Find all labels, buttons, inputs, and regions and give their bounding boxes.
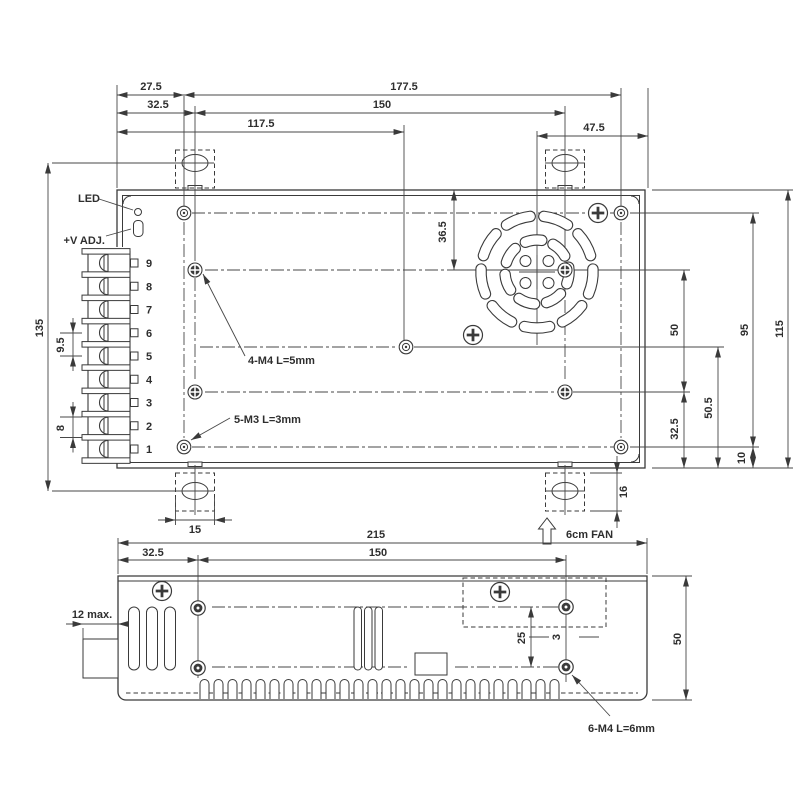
terminal-pin xyxy=(131,399,139,407)
dim-150: 150 xyxy=(373,99,391,111)
dim-8: 8 xyxy=(55,425,67,431)
terminal-fin xyxy=(82,388,130,394)
phillips-screw-icon xyxy=(589,204,608,223)
bottom-vent xyxy=(270,680,279,700)
fan-center-hole xyxy=(520,256,531,267)
dim-side-50: 50 xyxy=(672,633,684,645)
m4-side-hole xyxy=(559,660,573,674)
bottom-vent xyxy=(284,680,293,700)
terminal-number: 2 xyxy=(146,421,152,433)
terminal-fin xyxy=(82,435,130,441)
fan-center-hole xyxy=(543,256,554,267)
dim-side-150: 150 xyxy=(369,547,387,559)
m3-note: 5-M3 L=3mm xyxy=(234,414,301,426)
dim-32-5: 32.5 xyxy=(147,99,168,111)
terminal-number: 1 xyxy=(146,444,152,456)
bottom-vent xyxy=(424,680,433,700)
fan-center-hole xyxy=(520,278,531,289)
bottom-vent xyxy=(452,680,461,700)
phillips-screw-icon xyxy=(153,582,172,601)
bottom-vent xyxy=(508,680,517,700)
terminal-number: 3 xyxy=(146,398,152,410)
terminal-number: 9 xyxy=(146,258,152,270)
m3-hole xyxy=(614,206,628,220)
case-inner-wall xyxy=(123,196,640,463)
airflow-arrow-icon xyxy=(539,518,556,544)
m4-note: 4-M4 L=5mm xyxy=(248,355,315,367)
vent-slot xyxy=(375,607,383,670)
dim-25: 25 xyxy=(516,632,528,644)
terminal-pin xyxy=(131,445,139,453)
terminal-pin xyxy=(131,422,139,430)
dim-right-50-5: 50.5 xyxy=(703,397,715,418)
terminal-number: 8 xyxy=(146,281,152,293)
bottom-vent xyxy=(340,680,349,700)
top-m4-holes xyxy=(188,263,572,399)
terminal-pin xyxy=(131,306,139,314)
terminal-number: 5 xyxy=(146,351,152,363)
side-view: 215 32.5 150 12 max. 25 3 50 6-M4 L=6mm xyxy=(66,529,692,735)
phillips-screws-side xyxy=(153,582,510,602)
terminal-fin xyxy=(82,295,130,301)
terminal-pin xyxy=(131,329,139,337)
terminal-number: 6 xyxy=(146,328,152,340)
bottom-vent xyxy=(438,680,447,700)
terminal-pin xyxy=(131,259,139,267)
m4-hole xyxy=(558,385,572,399)
vent-slot xyxy=(365,607,373,670)
dim-right-95: 95 xyxy=(739,324,751,336)
m4-hole xyxy=(188,385,202,399)
bottom-vent xyxy=(536,680,545,700)
case-outline xyxy=(117,190,645,468)
bottom-vent xyxy=(494,680,503,700)
bottom-vent xyxy=(312,680,321,700)
side-mid-slots xyxy=(354,607,383,670)
dim-3: 3 xyxy=(551,634,563,640)
dim-right-115: 115 xyxy=(774,320,786,338)
fan-note: 6cm FAN xyxy=(566,529,613,541)
vent-slot xyxy=(165,607,176,670)
bottom-vent xyxy=(298,680,307,700)
dim-right-10: 10 xyxy=(736,452,748,464)
psu-mechanical-drawing: 987654321 27.5 177.5 32.5 150 117.5 47.5… xyxy=(0,0,800,800)
dim-36-5: 36.5 xyxy=(437,221,449,242)
phillips-screw-icon xyxy=(464,326,483,345)
m3-hole xyxy=(177,206,191,220)
bottom-vent xyxy=(550,680,559,700)
dim-215: 215 xyxy=(367,529,385,541)
internal-fan-outline xyxy=(463,578,606,627)
dim-side-32-5: 32.5 xyxy=(142,547,163,559)
bottom-vent xyxy=(242,680,251,700)
terminal-pin xyxy=(131,375,139,383)
led-indicator xyxy=(135,209,142,216)
bottom-vents xyxy=(200,680,559,700)
terminal-pin xyxy=(131,282,139,290)
bottom-vent xyxy=(256,680,265,700)
side-small-box xyxy=(415,653,447,675)
dim-9-5: 9.5 xyxy=(55,337,67,352)
dim-16: 16 xyxy=(618,486,630,498)
vent-slot xyxy=(354,607,362,670)
dim-right-32-5: 32.5 xyxy=(669,418,681,439)
m4-hole xyxy=(188,263,202,277)
dim-177-5: 177.5 xyxy=(390,81,418,93)
terminal-fin xyxy=(82,458,130,464)
dim-right-50: 50 xyxy=(669,324,681,336)
dimension-lines xyxy=(48,95,788,528)
terminal-protrusion xyxy=(83,639,118,678)
top-view: 987654321 27.5 177.5 32.5 150 117.5 47.5… xyxy=(34,81,793,544)
corner-reliefs xyxy=(123,196,639,462)
dim-135: 135 xyxy=(34,319,46,337)
dim-15: 15 xyxy=(189,524,201,536)
vent-slot xyxy=(147,607,158,670)
bottom-vent xyxy=(522,680,531,700)
extension-lines xyxy=(52,85,793,525)
bottom-vent xyxy=(368,680,377,700)
terminal-number: 4 xyxy=(146,374,153,386)
bottom-vent xyxy=(466,680,475,700)
m3-hole xyxy=(614,440,628,454)
voltage-adjust-pot xyxy=(134,221,144,237)
bottom-vent xyxy=(396,680,405,700)
terminal-number: 7 xyxy=(146,305,152,317)
m4-side-hole xyxy=(191,601,205,615)
m4-side-hole xyxy=(191,661,205,675)
terminal-fin xyxy=(82,365,130,371)
mounting-brackets xyxy=(176,150,585,515)
dim-27-5: 27.5 xyxy=(140,81,161,93)
terminal-fin xyxy=(82,342,130,348)
fan-center-hole xyxy=(543,278,554,289)
terminal-fin xyxy=(82,411,130,417)
bottom-vent xyxy=(410,680,419,700)
m4-side-hole xyxy=(559,600,573,614)
vent-slot xyxy=(129,607,140,670)
terminal-block: 987654321 xyxy=(82,247,153,463)
m3-hole xyxy=(399,340,413,354)
terminal-pin xyxy=(131,352,139,360)
dim-12-max: 12 max. xyxy=(72,609,112,621)
m4-hole xyxy=(558,263,572,277)
bottom-vent xyxy=(382,680,391,700)
terminal-fin xyxy=(82,272,130,278)
dim-117-5: 117.5 xyxy=(248,118,275,130)
led-label: LED xyxy=(78,193,100,205)
terminal-fin xyxy=(82,249,130,255)
bottom-vent xyxy=(228,680,237,700)
mechanical-drawing-page: 987654321 27.5 177.5 32.5 150 117.5 47.5… xyxy=(0,0,800,800)
bottom-vent xyxy=(354,680,363,700)
m3-hole xyxy=(177,440,191,454)
vadj-label: +V ADJ. xyxy=(64,235,105,247)
bottom-vent xyxy=(200,680,209,700)
bottom-vent xyxy=(214,680,223,700)
bottom-vent xyxy=(326,680,335,700)
side-left-vents xyxy=(129,607,176,670)
terminal-fin xyxy=(82,318,130,324)
phillips-screw-icon xyxy=(491,583,510,602)
dim-47-5: 47.5 xyxy=(583,122,604,134)
m4-side-note: 6-M4 L=6mm xyxy=(588,723,655,735)
bottom-vent xyxy=(480,680,489,700)
